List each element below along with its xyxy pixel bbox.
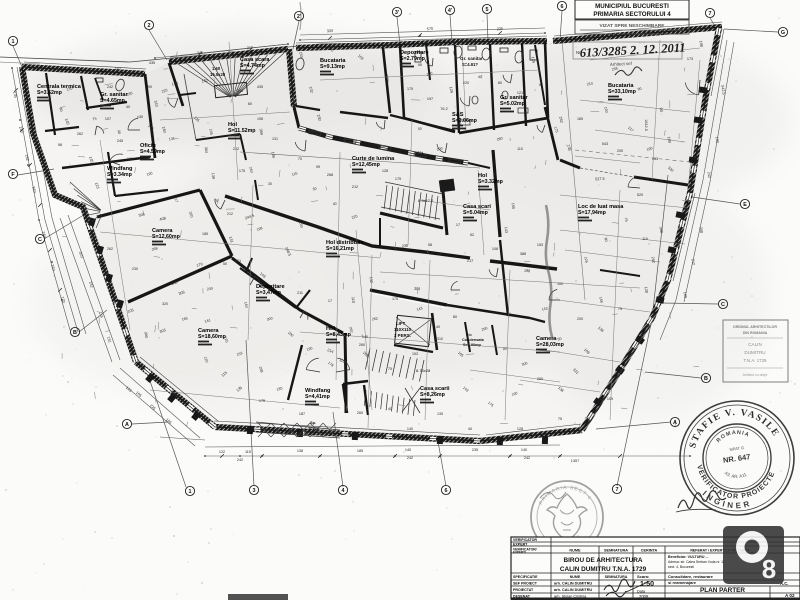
svg-text:30x20: 30x20 xyxy=(308,426,320,431)
svg-text:S=5.04mp: S=5.04mp xyxy=(463,210,489,216)
svg-text:309: 309 xyxy=(414,287,421,291)
svg-text:S=4.65mp: S=4.65mp xyxy=(100,98,126,104)
svg-text:242: 242 xyxy=(107,85,113,89)
svg-text:BIROU DE ARHITECTURA: BIROU DE ARHITECTURA xyxy=(564,557,643,564)
svg-text:S=3.62mp: S=3.62mp xyxy=(37,90,63,96)
svg-text:175: 175 xyxy=(259,399,265,403)
svg-text:S=11.52mp: S=11.52mp xyxy=(228,128,256,134)
svg-text:75: 75 xyxy=(388,367,392,371)
svg-text:SEMNATURA: SEMNATURA xyxy=(605,575,628,579)
svg-text:200: 200 xyxy=(617,149,623,153)
svg-text:S=12,45mp: S=12,45mp xyxy=(352,162,381,168)
svg-text:70: 70 xyxy=(298,157,302,161)
svg-text:SEMNATURA: SEMNATURA xyxy=(604,549,628,553)
svg-text:S=28,03mp: S=28,03mp xyxy=(536,342,565,348)
svg-text:108: 108 xyxy=(492,247,498,251)
svg-text:131: 131 xyxy=(169,137,175,142)
svg-text:280: 280 xyxy=(537,377,543,381)
svg-text:S=18,60mp: S=18,60mp xyxy=(198,334,227,340)
svg-text:B: B xyxy=(73,330,77,336)
svg-text:210: 210 xyxy=(587,82,593,87)
svg-text:235: 235 xyxy=(472,448,478,452)
svg-text:26: 26 xyxy=(343,137,347,141)
svg-text:212: 212 xyxy=(233,147,239,151)
svg-text:S=8,43mp: S=8,43mp xyxy=(326,332,352,338)
svg-text:NUME: NUME xyxy=(569,549,581,553)
svg-text:185: 185 xyxy=(577,117,583,121)
svg-text:Data: Data xyxy=(637,590,646,594)
svg-text:16.5x28: 16.5x28 xyxy=(210,72,226,77)
svg-text:242: 242 xyxy=(407,456,413,460)
svg-text:109: 109 xyxy=(607,397,613,401)
svg-text:PRIMARIA SECTORULUI 4: PRIMARIA SECTORULUI 4 xyxy=(593,11,671,18)
svg-text:arh. CALIN DUMITRU: arh. CALIN DUMITRU xyxy=(554,582,592,586)
svg-text:165: 165 xyxy=(127,157,133,161)
svg-text:NUME: NUME xyxy=(570,575,581,579)
svg-text:VERIFICATOR: VERIFICATOR xyxy=(513,538,537,542)
svg-text:121: 121 xyxy=(235,259,241,263)
svg-text:50: 50 xyxy=(223,262,227,266)
svg-text:17: 17 xyxy=(328,299,332,303)
svg-text:8: 8 xyxy=(409,219,411,223)
svg-text:153: 153 xyxy=(652,157,658,161)
svg-text:80: 80 xyxy=(453,315,457,319)
svg-text:7: 7 xyxy=(616,487,619,493)
svg-text:245: 245 xyxy=(117,139,123,143)
svg-text:58: 58 xyxy=(428,243,432,247)
svg-text:268: 268 xyxy=(327,173,333,177)
svg-text:40: 40 xyxy=(436,325,440,329)
svg-text:A 02: A 02 xyxy=(785,593,795,598)
svg-text:109: 109 xyxy=(683,291,688,298)
svg-text:7: 7 xyxy=(709,11,712,17)
svg-text:MUNICIPIUL BUCURESTI: MUNICIPIUL BUCURESTI xyxy=(595,3,669,10)
svg-text:230: 230 xyxy=(207,287,213,292)
svg-text:187: 187 xyxy=(299,412,305,416)
svg-text:212: 212 xyxy=(352,185,358,189)
svg-text:1: 1 xyxy=(12,39,15,45)
svg-text:185: 185 xyxy=(202,232,208,236)
svg-text:3': 3' xyxy=(395,10,399,16)
svg-text:52: 52 xyxy=(470,233,474,237)
svg-text:DUMITRU: DUMITRU xyxy=(744,350,765,355)
svg-text:173: 173 xyxy=(687,57,693,61)
svg-text:185: 185 xyxy=(357,449,363,453)
svg-text:140: 140 xyxy=(521,448,527,452)
svg-text:S=4,41mp: S=4,41mp xyxy=(305,394,331,400)
svg-text:50: 50 xyxy=(438,43,442,47)
svg-text:5: 5 xyxy=(486,7,489,13)
svg-text:A: A xyxy=(673,420,677,426)
svg-text:arh. CALIN DUMITRU: arh. CALIN DUMITRU xyxy=(554,588,592,592)
svg-text:Gr. sanitar: Gr. sanitar xyxy=(460,56,483,61)
svg-text:131: 131 xyxy=(502,41,508,45)
svg-text:S=3.34mp: S=3.34mp xyxy=(107,172,133,178)
svg-text:122: 122 xyxy=(219,450,225,454)
svg-text:225: 225 xyxy=(497,27,504,31)
svg-text:PROIECTAT: PROIECTAT xyxy=(513,588,534,592)
svg-text:G: G xyxy=(781,30,785,36)
svg-text:8 9x17.2: 8 9x17.2 xyxy=(418,198,434,203)
svg-text:435: 435 xyxy=(149,61,155,65)
svg-text:220: 220 xyxy=(463,81,469,85)
svg-text:98: 98 xyxy=(58,143,62,147)
svg-text:4': 4' xyxy=(448,8,452,14)
svg-text:8.75x28: 8.75x28 xyxy=(416,368,431,373)
svg-text:75: 75 xyxy=(214,199,218,203)
svg-text:1: 1 xyxy=(189,489,192,495)
svg-text:527.5: 527.5 xyxy=(595,177,605,182)
svg-text:520: 520 xyxy=(637,193,643,197)
svg-text:90: 90 xyxy=(418,63,422,67)
svg-text:Adresa: str. Calea Serban Voda: Adresa: str. Calea Serban Voda nr. 12 xyxy=(668,560,725,564)
svg-text:143: 143 xyxy=(504,227,509,234)
svg-text:EXPERT: EXPERT xyxy=(513,543,528,547)
svg-text:110: 110 xyxy=(517,147,523,151)
svg-text:140: 140 xyxy=(405,448,411,452)
svg-text:242: 242 xyxy=(237,458,243,462)
svg-text:198: 198 xyxy=(524,269,531,273)
svg-text:Consolidare, restaurare: Consolidare, restaurare xyxy=(668,574,714,579)
svg-text:VIZAT SPRE NESCHIMBARE: VIZAT SPRE NESCHIMBARE xyxy=(600,23,666,29)
svg-text:CALIN: CALIN xyxy=(748,342,762,347)
svg-text:128: 128 xyxy=(517,427,523,431)
svg-text:8: 8 xyxy=(762,554,776,584)
svg-text:6: 6 xyxy=(561,4,564,10)
svg-text:262: 262 xyxy=(107,247,113,251)
svg-text:198: 198 xyxy=(257,117,263,121)
svg-text:110X110: 110X110 xyxy=(394,327,412,332)
svg-text:260: 260 xyxy=(359,343,365,347)
svg-text:1357: 1357 xyxy=(571,459,579,463)
svg-text:150: 150 xyxy=(237,89,243,93)
svg-text:115: 115 xyxy=(245,450,251,454)
svg-text:132: 132 xyxy=(369,277,374,284)
svg-text:Condensata: Condensata xyxy=(462,338,485,342)
svg-text:S=3.32mp: S=3.32mp xyxy=(478,179,504,185)
svg-text:262: 262 xyxy=(77,132,83,136)
svg-text:S=1.90mp: S=1.90mp xyxy=(463,343,482,347)
svg-text:128: 128 xyxy=(382,169,388,173)
svg-text:40: 40 xyxy=(468,427,472,431)
svg-text:197: 197 xyxy=(427,97,433,101)
svg-text:60: 60 xyxy=(248,102,252,106)
svg-text:S=5.02mp: S=5.02mp xyxy=(500,101,526,107)
svg-text:110: 110 xyxy=(642,237,648,241)
svg-text:242: 242 xyxy=(524,456,530,460)
svg-text:T.N.A. 1729: T.N.A. 1729 xyxy=(744,358,767,363)
svg-text:75: 75 xyxy=(618,307,622,311)
svg-text:S=2.79mp: S=2.79mp xyxy=(400,56,426,62)
svg-text:1.60: 1.60 xyxy=(212,66,221,71)
svg-text:S=17,94mp: S=17,94mp xyxy=(578,210,607,216)
svg-text:S=8,26mp: S=8,26mp xyxy=(420,392,446,398)
svg-text:310: 310 xyxy=(437,337,443,341)
svg-text:153: 153 xyxy=(537,243,543,247)
svg-text:40: 40 xyxy=(388,407,392,411)
svg-text:30: 30 xyxy=(268,182,272,186)
svg-text:175: 175 xyxy=(239,169,245,173)
svg-text:230: 230 xyxy=(132,267,138,271)
svg-text:PLAN PARTER: PLAN PARTER xyxy=(700,587,745,594)
svg-text:107: 107 xyxy=(115,67,121,71)
svg-text:Arhitect cu drept: Arhitect cu drept xyxy=(743,373,768,377)
svg-text:S=16,21mp: S=16,21mp xyxy=(326,246,355,252)
svg-text:EXPERTI: EXPERTI xyxy=(513,550,526,554)
svg-text:C: C xyxy=(38,237,42,243)
svg-text:153: 153 xyxy=(412,352,418,356)
svg-text:242: 242 xyxy=(691,258,696,265)
svg-text:123: 123 xyxy=(467,39,473,43)
svg-text:135: 135 xyxy=(437,412,443,416)
svg-text:217: 217 xyxy=(467,259,474,263)
svg-text:121: 121 xyxy=(517,91,523,95)
svg-text:50: 50 xyxy=(418,127,423,132)
svg-text:110: 110 xyxy=(351,297,356,303)
svg-text:175: 175 xyxy=(392,297,398,301)
svg-text:B: B xyxy=(704,376,708,382)
svg-text:175: 175 xyxy=(395,177,401,181)
svg-text:190: 190 xyxy=(715,136,720,143)
svg-text:Lila: Lila xyxy=(466,333,472,337)
svg-text:211: 211 xyxy=(297,291,303,295)
svg-text:138: 138 xyxy=(297,449,303,453)
svg-text:140: 140 xyxy=(362,335,368,339)
svg-text:S=4.74mp: S=4.74mp xyxy=(240,63,266,69)
svg-text:18: 18 xyxy=(438,252,442,256)
svg-text:4: 4 xyxy=(342,488,345,494)
svg-text:6: 6 xyxy=(445,488,448,494)
svg-text:CERINTA: CERINTA xyxy=(641,549,658,553)
svg-text:155: 155 xyxy=(511,203,516,210)
svg-text:388: 388 xyxy=(520,252,526,256)
svg-text:DIN ROMANIA: DIN ROMANIA xyxy=(743,331,768,335)
svg-text:236: 236 xyxy=(402,244,409,248)
svg-text:SEF PROIECT: SEF PROIECT xyxy=(513,582,538,586)
svg-text:2: 2 xyxy=(148,23,151,29)
svg-text:80: 80 xyxy=(498,81,502,85)
svg-text:90: 90 xyxy=(659,107,664,112)
svg-text:90: 90 xyxy=(503,347,508,352)
svg-text:C: C xyxy=(721,302,725,308)
svg-text:435: 435 xyxy=(257,85,263,89)
svg-text:S=33,10mp: S=33,10mp xyxy=(608,89,637,95)
svg-text:si reamenajare: si reamenajare xyxy=(668,580,697,585)
svg-text:S=12,60mp: S=12,60mp xyxy=(152,234,181,240)
svg-text:17: 17 xyxy=(456,223,460,227)
svg-text:1642.5: 1642.5 xyxy=(644,119,648,131)
svg-text:SPECIFICATIE: SPECIFICATIE xyxy=(513,575,538,579)
svg-text:E: E xyxy=(743,202,747,208)
svg-text:S=4.91?: S=4.91? xyxy=(462,62,478,67)
svg-text:75: 75 xyxy=(558,417,562,421)
svg-text:90: 90 xyxy=(148,85,152,89)
svg-text:107: 107 xyxy=(105,117,111,121)
svg-text:131: 131 xyxy=(272,137,278,141)
svg-text:Scara:: Scara: xyxy=(637,574,649,579)
svg-text:3 PERS.: 3 PERS. xyxy=(394,333,411,338)
svg-text:3: 3 xyxy=(253,488,256,494)
svg-text:262: 262 xyxy=(372,317,378,322)
svg-text:334: 334 xyxy=(327,29,334,33)
svg-text:S=3,47mp: S=3,47mp xyxy=(256,290,282,296)
svg-text:260: 260 xyxy=(357,411,363,415)
svg-text:76.2: 76.2 xyxy=(440,107,447,111)
svg-text:102: 102 xyxy=(557,282,563,286)
svg-text:543: 543 xyxy=(602,142,608,146)
svg-text:99: 99 xyxy=(316,165,320,169)
svg-text:Sp.: Sp. xyxy=(310,420,316,425)
svg-text:A: A xyxy=(125,422,129,428)
svg-text:40: 40 xyxy=(126,105,130,109)
svg-text:139: 139 xyxy=(211,173,216,180)
svg-text:X: X xyxy=(539,83,542,87)
svg-text:570: 570 xyxy=(427,27,434,31)
svg-text:200: 200 xyxy=(577,317,583,321)
svg-text:175: 175 xyxy=(407,87,413,91)
svg-text:242: 242 xyxy=(707,171,712,178)
svg-text:LIFT: LIFT xyxy=(396,321,406,326)
svg-text:320: 320 xyxy=(162,302,168,306)
svg-text:sect. 4, Bucuresti: sect. 4, Bucuresti xyxy=(668,565,694,569)
svg-text:364: 364 xyxy=(204,147,209,154)
svg-text:S=2.06mp: S=2.06mp xyxy=(452,118,478,124)
svg-text:140: 140 xyxy=(407,427,413,431)
svg-text:212: 212 xyxy=(227,212,233,216)
svg-text:S=9.13mp: S=9.13mp xyxy=(320,64,346,70)
svg-text:308: 308 xyxy=(699,226,704,233)
svg-text:Beneficiar: VULTURU ...: Beneficiar: VULTURU ... xyxy=(668,555,708,559)
svg-text:30: 30 xyxy=(117,130,122,135)
svg-text:«30: «30 xyxy=(137,115,143,119)
svg-text:S=4.59mp: S=4.59mp xyxy=(140,149,166,155)
svg-text:CALIN DUMITRU T.N.A. 1729: CALIN DUMITRU T.N.A. 1729 xyxy=(560,566,647,573)
svg-text:ORDINUL ARHITECTILOR: ORDINUL ARHITECTILOR xyxy=(733,325,777,329)
